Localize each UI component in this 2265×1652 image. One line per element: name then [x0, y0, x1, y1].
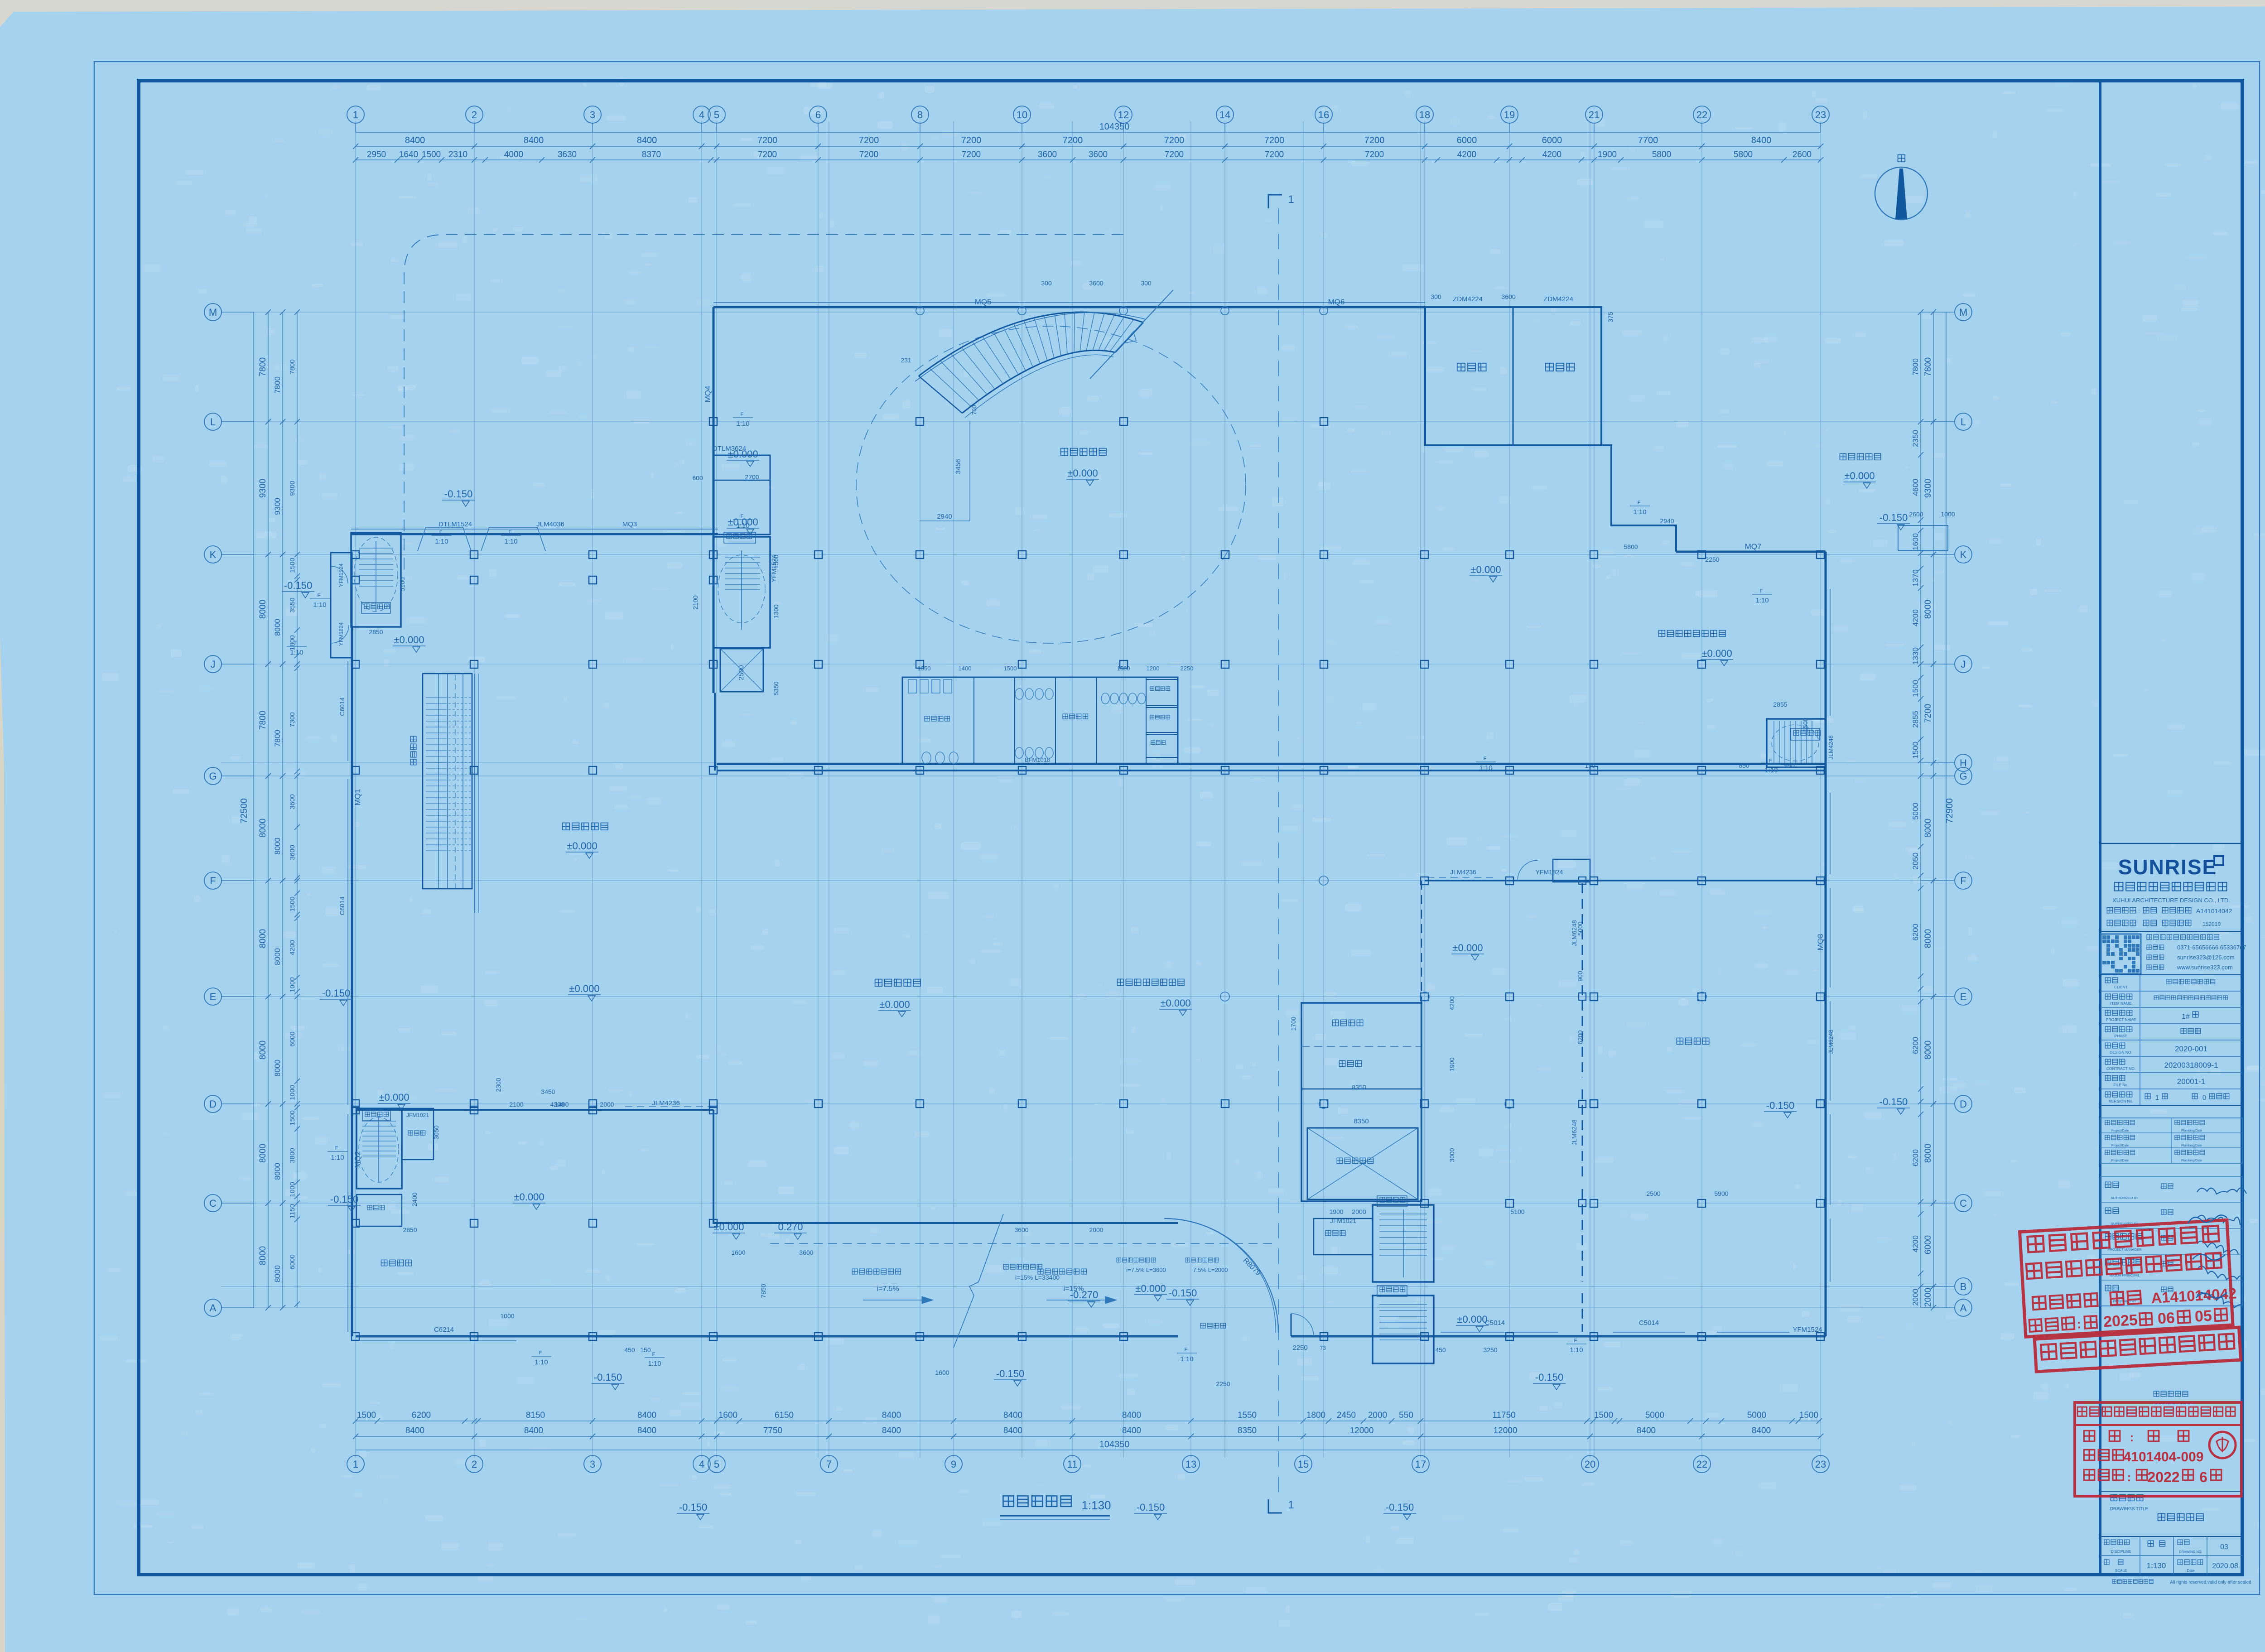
svg-text:±0.000: ±0.000 — [514, 1191, 544, 1203]
svg-text:F: F — [1769, 758, 1772, 764]
svg-text:7200: 7200 — [1265, 150, 1284, 159]
svg-text:2022: 2022 — [2147, 1469, 2179, 1485]
svg-text:BFM1018: BFM1018 — [1025, 756, 1050, 763]
svg-text:6200: 6200 — [412, 1411, 431, 1420]
svg-text:F: F — [652, 1352, 655, 1357]
svg-text:10: 10 — [1017, 109, 1027, 120]
svg-text:6200: 6200 — [1911, 1037, 1920, 1054]
svg-text:7800: 7800 — [289, 359, 296, 374]
svg-text:7200: 7200 — [1165, 150, 1184, 159]
svg-text:2000: 2000 — [1923, 1288, 1933, 1307]
svg-text:F: F — [1185, 1347, 1188, 1353]
svg-text:B: B — [1960, 1281, 1967, 1292]
svg-text:8400: 8400 — [1122, 1426, 1141, 1435]
svg-text:8370: 8370 — [642, 150, 661, 159]
svg-text:2310: 2310 — [448, 150, 467, 159]
svg-text:1: 1 — [353, 1459, 358, 1470]
svg-text:22: 22 — [1696, 1459, 1707, 1470]
svg-text:231: 231 — [901, 356, 911, 364]
svg-text:±0.000: ±0.000 — [379, 1092, 409, 1103]
svg-text:E: E — [1960, 991, 1967, 1002]
svg-text:Plumbing/Date: Plumbing/Date — [2181, 1159, 2202, 1162]
svg-text:0: 0 — [2202, 1094, 2206, 1102]
svg-text:8000: 8000 — [258, 1040, 268, 1060]
svg-text:4200: 4200 — [1457, 150, 1476, 159]
svg-text:4101404-009: 4101404-009 — [2124, 1450, 2204, 1464]
svg-text:www.sunrise323.com: www.sunrise323.com — [2177, 964, 2233, 971]
svg-text:2100: 2100 — [692, 595, 699, 609]
svg-text:SUNRISE: SUNRISE — [2118, 855, 2217, 879]
svg-text:7800: 7800 — [1911, 358, 1920, 376]
svg-text:±0.000: ±0.000 — [879, 999, 910, 1010]
svg-text:JFM1021: JFM1021 — [406, 1112, 429, 1118]
svg-text:1500: 1500 — [289, 896, 296, 911]
svg-text:9300: 9300 — [258, 479, 268, 498]
svg-text:-0.150: -0.150 — [996, 1368, 1024, 1379]
svg-text:±0.000: ±0.000 — [1160, 997, 1190, 1009]
svg-text:1500: 1500 — [772, 554, 780, 568]
svg-text:8400: 8400 — [1637, 1426, 1656, 1435]
svg-text:375: 375 — [1607, 312, 1614, 323]
svg-text:5100: 5100 — [399, 577, 406, 591]
svg-text:JFM1021: JFM1021 — [1330, 1217, 1357, 1224]
svg-text:F: F — [335, 1146, 338, 1151]
svg-text:±0.000: ±0.000 — [1701, 648, 1732, 659]
svg-text:1500: 1500 — [422, 150, 441, 159]
svg-text:2950: 2950 — [367, 150, 386, 159]
svg-text:7750: 7750 — [763, 1426, 782, 1435]
svg-text:JLM6248: JLM6248 — [1827, 1030, 1834, 1054]
svg-text:1700: 1700 — [1290, 1016, 1297, 1031]
svg-text:ITEM NAME: ITEM NAME — [2110, 1001, 2132, 1006]
svg-text:7800: 7800 — [273, 376, 282, 394]
svg-text:8000: 8000 — [258, 1144, 268, 1163]
svg-text:19: 19 — [1504, 109, 1515, 120]
svg-text:F: F — [318, 593, 321, 598]
svg-text:MQ2: MQ2 — [353, 1151, 362, 1168]
svg-text:1000: 1000 — [289, 1182, 296, 1197]
svg-text:11: 11 — [1067, 1459, 1078, 1470]
svg-text:2700: 2700 — [745, 473, 759, 481]
svg-text:300: 300 — [1141, 279, 1152, 287]
svg-text:7800: 7800 — [258, 357, 268, 376]
svg-text:PROJECT MANAGER: PROJECT MANAGER — [2108, 1247, 2142, 1252]
svg-text:L: L — [210, 416, 216, 428]
svg-text:F: F — [1484, 756, 1487, 761]
svg-text:DESIGN NO.: DESIGN NO. — [2110, 1050, 2132, 1055]
svg-text:8400: 8400 — [1752, 1426, 1771, 1435]
svg-text:5350: 5350 — [772, 681, 780, 695]
svg-text:8000: 8000 — [273, 619, 282, 636]
svg-text:5800: 5800 — [1624, 543, 1638, 550]
svg-text:2250: 2250 — [1181, 665, 1194, 672]
svg-text:D: D — [209, 1098, 217, 1110]
svg-text:5: 5 — [714, 1459, 719, 1470]
svg-text:A141014042: A141014042 — [2196, 907, 2232, 915]
svg-text:F: F — [294, 641, 298, 646]
svg-text:7200: 7200 — [758, 150, 777, 159]
svg-text:3600: 3600 — [1089, 279, 1103, 287]
svg-text:MQ3: MQ3 — [622, 520, 637, 528]
svg-text:1:10: 1:10 — [504, 538, 517, 545]
svg-text:Project/Date: Project/Date — [2111, 1159, 2129, 1162]
svg-text:1500: 1500 — [1799, 1411, 1818, 1420]
svg-text:8400: 8400 — [882, 1426, 901, 1435]
svg-text:3450: 3450 — [541, 1088, 555, 1095]
svg-text:150: 150 — [1585, 762, 1595, 769]
svg-text:3600: 3600 — [1038, 150, 1057, 159]
svg-text:JLM4036: JLM4036 — [536, 520, 564, 528]
svg-text:C6014: C6014 — [338, 697, 346, 716]
svg-text:7200: 7200 — [1063, 135, 1083, 145]
svg-text:23: 23 — [1815, 1459, 1826, 1470]
svg-text:FILE No.: FILE No. — [2113, 1083, 2129, 1087]
svg-text:5800: 5800 — [1652, 150, 1671, 159]
svg-text:22: 22 — [1696, 109, 1707, 120]
svg-text:±0.000: ±0.000 — [569, 983, 599, 994]
svg-text:7200: 7200 — [1364, 135, 1385, 145]
svg-text:JLM4236: JLM4236 — [1450, 868, 1476, 876]
svg-text:2600: 2600 — [1909, 511, 1923, 518]
svg-text:1: 1 — [353, 109, 358, 120]
svg-text:03: 03 — [2220, 1543, 2228, 1551]
svg-text:2940: 2940 — [937, 513, 952, 520]
svg-text:3250: 3250 — [1483, 1346, 1497, 1353]
svg-text:Plumbing/Date: Plumbing/Date — [2181, 1129, 2202, 1132]
svg-text::: : — [2127, 1470, 2131, 1484]
svg-text:M: M — [1959, 307, 1967, 318]
svg-text:9300: 9300 — [289, 481, 296, 496]
svg-text:8000: 8000 — [1923, 1040, 1933, 1060]
svg-text:7200: 7200 — [1164, 135, 1185, 145]
svg-text:1400: 1400 — [959, 665, 972, 672]
svg-text:1:10: 1:10 — [1479, 764, 1492, 772]
svg-text:F: F — [1638, 500, 1641, 506]
svg-text:±0.000: ±0.000 — [567, 840, 597, 852]
svg-text:DRAWINGS TITLE: DRAWINGS TITLE — [2110, 1507, 2149, 1512]
svg-text:A: A — [1960, 1302, 1967, 1314]
svg-text:4000: 4000 — [504, 150, 523, 159]
svg-text:YFM1524: YFM1524 — [338, 564, 344, 587]
svg-text:7200: 7200 — [859, 150, 878, 159]
svg-text:1: 1 — [1288, 193, 1294, 206]
svg-text:J: J — [1961, 659, 1966, 670]
svg-text:73: 73 — [1320, 1345, 1326, 1351]
svg-text:8400: 8400 — [405, 135, 425, 145]
svg-text:1500: 1500 — [1004, 665, 1017, 672]
svg-text:1300: 1300 — [772, 604, 780, 618]
svg-text:7800: 7800 — [258, 711, 268, 730]
svg-text:4600: 4600 — [1911, 479, 1920, 496]
svg-text:8350: 8350 — [1354, 1117, 1369, 1125]
svg-text:12000: 12000 — [1350, 1426, 1374, 1435]
svg-text:1500: 1500 — [289, 558, 296, 573]
svg-text:8400: 8400 — [637, 135, 657, 145]
svg-text:3600: 3600 — [289, 845, 296, 860]
svg-text:-0.150: -0.150 — [1169, 1287, 1197, 1299]
svg-text:3600: 3600 — [1501, 293, 1515, 300]
svg-text:-0.150: -0.150 — [1879, 1096, 1908, 1108]
svg-text:23: 23 — [1815, 109, 1826, 120]
svg-text:6200: 6200 — [1911, 924, 1920, 941]
svg-text:8400: 8400 — [524, 1426, 543, 1435]
svg-text:300: 300 — [1431, 293, 1441, 300]
svg-text:8400: 8400 — [882, 1411, 901, 1420]
svg-text:1500: 1500 — [1802, 718, 1809, 732]
svg-text:5800: 5800 — [1734, 150, 1753, 159]
svg-text:6000: 6000 — [1457, 135, 1477, 145]
svg-text:1200: 1200 — [1147, 665, 1160, 672]
svg-text:8000: 8000 — [1923, 600, 1933, 619]
svg-text:21: 21 — [1589, 109, 1600, 120]
svg-text:7.5% L=2000: 7.5% L=2000 — [1193, 1267, 1228, 1273]
svg-text:F: F — [439, 530, 443, 535]
svg-text:F: F — [210, 875, 216, 886]
svg-text:±0.000: ±0.000 — [1470, 564, 1501, 575]
svg-text:-0.150: -0.150 — [284, 580, 312, 591]
svg-text:7: 7 — [826, 1459, 832, 1470]
svg-text:-0.150: -0.150 — [679, 1502, 707, 1513]
svg-text:9: 9 — [951, 1459, 956, 1470]
svg-text:18: 18 — [1419, 109, 1430, 120]
svg-text:1330: 1330 — [1911, 647, 1920, 665]
svg-text:F: F — [539, 1350, 542, 1356]
svg-text:4200: 4200 — [289, 940, 296, 955]
svg-text:2000: 2000 — [1352, 1208, 1366, 1215]
svg-text:3800: 3800 — [289, 1148, 296, 1163]
svg-text:1:10: 1:10 — [331, 1154, 344, 1161]
svg-text:104350: 104350 — [1099, 1440, 1130, 1450]
svg-text:-0.150: -0.150 — [1535, 1372, 1563, 1383]
svg-text:1: 1 — [2155, 1094, 2159, 1102]
svg-text:DTLM1524: DTLM1524 — [439, 520, 472, 528]
svg-text:JLM6248: JLM6248 — [1571, 1119, 1578, 1146]
svg-text:1500: 1500 — [1911, 680, 1920, 697]
svg-text:1550: 1550 — [1238, 1411, 1257, 1420]
svg-text:8000: 8000 — [273, 1060, 282, 1077]
svg-text:8400: 8400 — [405, 1426, 424, 1435]
svg-text:JLM4248: JLM4248 — [1827, 735, 1834, 759]
svg-text:8000: 8000 — [258, 929, 268, 948]
svg-text:A: A — [210, 1302, 217, 1314]
svg-text:8000: 8000 — [258, 600, 268, 619]
svg-text:104350: 104350 — [1099, 122, 1130, 132]
svg-text:12000: 12000 — [1494, 1426, 1518, 1435]
svg-text:3600: 3600 — [1089, 150, 1108, 159]
svg-text:3600: 3600 — [1014, 1226, 1028, 1233]
svg-text:7200: 7200 — [1923, 704, 1933, 723]
svg-text:2250: 2250 — [1292, 1344, 1307, 1352]
svg-text:8350: 8350 — [1352, 1084, 1366, 1091]
svg-text:±0.000: ±0.000 — [394, 634, 424, 645]
svg-text:72500: 72500 — [239, 798, 249, 824]
svg-text:YFM1824: YFM1824 — [1536, 868, 1563, 876]
svg-text:1600: 1600 — [718, 1411, 737, 1420]
svg-text:1000: 1000 — [1941, 511, 1955, 518]
svg-text:8000: 8000 — [1923, 929, 1933, 948]
svg-text:1:130: 1:130 — [2147, 1561, 2166, 1570]
svg-text:CLIENT: CLIENT — [2114, 985, 2128, 989]
svg-text:J: J — [211, 659, 216, 670]
svg-text:1500: 1500 — [357, 1411, 376, 1420]
svg-text:2020.08: 2020.08 — [2212, 1562, 2238, 1570]
svg-text:8400: 8400 — [1751, 135, 1772, 145]
svg-text:MQ4: MQ4 — [704, 386, 712, 403]
svg-text:2940: 2940 — [1660, 517, 1674, 525]
svg-text:3050: 3050 — [433, 1125, 440, 1139]
svg-text:5000: 5000 — [1576, 921, 1584, 935]
svg-text:Project/Date: Project/Date — [2111, 1144, 2129, 1147]
svg-text:G: G — [209, 771, 217, 782]
svg-text:1800: 1800 — [1306, 1411, 1325, 1420]
svg-text:7200: 7200 — [1365, 150, 1384, 159]
svg-text:±0.000: ±0.000 — [1457, 1314, 1487, 1325]
svg-text:1600: 1600 — [1911, 533, 1920, 550]
svg-text:20200318009-1: 20200318009-1 — [2164, 1061, 2218, 1069]
svg-text:7800: 7800 — [273, 730, 282, 747]
svg-text:Plumbing/Date: Plumbing/Date — [2181, 1144, 2202, 1147]
svg-text:i=7.5%: i=7.5% — [877, 1285, 899, 1293]
svg-text:8000: 8000 — [273, 1265, 282, 1282]
svg-text:1600: 1600 — [731, 1249, 745, 1256]
svg-text:C: C — [1960, 1198, 1967, 1209]
svg-text:DRAWING NO.: DRAWING NO. — [2179, 1550, 2202, 1554]
svg-text:6000: 6000 — [1542, 135, 1562, 145]
svg-text:2000: 2000 — [600, 1101, 614, 1108]
svg-text:1370: 1370 — [1911, 569, 1920, 587]
svg-text:8400: 8400 — [637, 1411, 656, 1420]
svg-text:i=15%: i=15% — [1064, 1285, 1084, 1293]
svg-text:2450: 2450 — [1337, 1411, 1356, 1420]
svg-text:8000: 8000 — [273, 948, 282, 965]
svg-text:3: 3 — [590, 1459, 595, 1470]
svg-text:E: E — [210, 991, 217, 1002]
svg-text:C5014: C5014 — [1639, 1319, 1659, 1327]
svg-text:7200: 7200 — [962, 150, 981, 159]
svg-text:2020-001: 2020-001 — [2175, 1045, 2207, 1053]
svg-text:K: K — [1960, 549, 1967, 560]
svg-text:±0.000: ±0.000 — [1844, 470, 1875, 482]
svg-text::: : — [2130, 1430, 2134, 1444]
svg-text:450: 450 — [624, 1346, 635, 1353]
svg-text:450: 450 — [1435, 1346, 1446, 1353]
svg-text:5000: 5000 — [1911, 803, 1920, 820]
svg-text:VERSION No.: VERSION No. — [2109, 1099, 2133, 1103]
svg-text:SCALE: SCALE — [2115, 1569, 2127, 1573]
svg-text:72900: 72900 — [1945, 798, 1955, 824]
svg-text:150: 150 — [640, 1346, 651, 1353]
svg-text:1000: 1000 — [500, 1312, 514, 1320]
svg-text:5000: 5000 — [1645, 1411, 1664, 1420]
svg-text:2600: 2600 — [1793, 150, 1812, 159]
svg-text:K: K — [210, 549, 217, 560]
svg-text:Date: Date — [2187, 1569, 2195, 1573]
svg-text:F: F — [1574, 1338, 1577, 1344]
svg-text:6200: 6200 — [1911, 1149, 1920, 1166]
svg-text:C6014: C6014 — [338, 896, 346, 915]
svg-text:±0.000: ±0.000 — [1067, 467, 1098, 479]
svg-text:F: F — [741, 514, 744, 519]
svg-text:2100: 2100 — [509, 1101, 523, 1108]
svg-text:8000: 8000 — [273, 838, 282, 855]
svg-text:1:10: 1:10 — [1570, 1346, 1583, 1354]
svg-text:MQ1: MQ1 — [353, 789, 362, 806]
svg-text:4200: 4200 — [1448, 996, 1455, 1010]
svg-text:PROJECT NAME: PROJECT NAME — [2106, 1017, 2136, 1022]
svg-text:1600: 1600 — [935, 1369, 949, 1376]
svg-text:M: M — [209, 307, 217, 318]
svg-text:2855: 2855 — [1911, 711, 1920, 728]
svg-text:2350: 2350 — [1911, 430, 1920, 447]
svg-text:1#: 1# — [2182, 1013, 2190, 1021]
svg-text:DISCIPLINE: DISCIPLINE — [2111, 1550, 2131, 1554]
svg-text:8400: 8400 — [524, 135, 544, 145]
svg-text:0.270: 0.270 — [778, 1221, 803, 1233]
svg-text:1:10: 1:10 — [736, 522, 749, 530]
svg-text:-0.150: -0.150 — [444, 488, 472, 500]
svg-text:DTLM3624: DTLM3624 — [713, 445, 746, 453]
svg-text:3550: 3550 — [289, 597, 296, 612]
svg-text:8400: 8400 — [637, 1426, 656, 1435]
svg-text:1900: 1900 — [1329, 1208, 1343, 1215]
svg-text:3: 3 — [590, 109, 595, 120]
svg-text:Project/Date: Project/Date — [2111, 1129, 2129, 1132]
svg-text:i=15% L=33400: i=15% L=33400 — [1015, 1274, 1060, 1281]
svg-text:05: 05 — [2194, 1307, 2212, 1325]
svg-text:1640: 1640 — [399, 150, 418, 159]
svg-text:600: 600 — [692, 474, 703, 482]
svg-text:5100: 5100 — [1510, 1208, 1524, 1215]
svg-text:6000: 6000 — [289, 1254, 296, 1269]
svg-text:1:10: 1:10 — [736, 420, 749, 428]
svg-text::: : — [2138, 907, 2140, 915]
svg-text:3456: 3456 — [954, 459, 962, 474]
svg-text:1:10: 1:10 — [1755, 597, 1769, 604]
svg-text:1000: 1000 — [289, 977, 296, 992]
svg-text:2250: 2250 — [1216, 1380, 1230, 1387]
svg-text:4200: 4200 — [1911, 1235, 1920, 1252]
svg-text:900: 900 — [1576, 971, 1584, 982]
svg-text:1:10: 1:10 — [535, 1358, 548, 1366]
svg-text:6: 6 — [815, 109, 821, 120]
svg-text:20: 20 — [1585, 1459, 1595, 1470]
svg-text:9300: 9300 — [1923, 479, 1933, 498]
svg-text:2025: 2025 — [2103, 1311, 2138, 1330]
svg-text:D: D — [1960, 1098, 1967, 1110]
svg-text:2400: 2400 — [411, 1192, 418, 1206]
svg-text:4200: 4200 — [1911, 609, 1920, 626]
svg-text:8150: 8150 — [526, 1411, 545, 1420]
svg-text:YFM1824: YFM1824 — [338, 622, 344, 646]
svg-text::: : — [2077, 1317, 2082, 1331]
svg-text:7300: 7300 — [289, 712, 296, 727]
svg-text:2300: 2300 — [495, 1078, 502, 1092]
svg-text:8: 8 — [917, 109, 923, 120]
svg-text:7700: 7700 — [1638, 135, 1658, 145]
svg-text:C: C — [209, 1198, 217, 1209]
svg-text:1500: 1500 — [1594, 1411, 1613, 1420]
svg-text:-0.150: -0.150 — [322, 987, 350, 999]
svg-text:6150: 6150 — [775, 1411, 794, 1420]
svg-text:8000: 8000 — [1923, 1144, 1933, 1163]
svg-text:3600: 3600 — [799, 1249, 813, 1256]
svg-text:13: 13 — [1186, 1459, 1196, 1470]
svg-text:6: 6 — [2199, 1469, 2207, 1485]
svg-text:4: 4 — [699, 1459, 704, 1470]
svg-text:F: F — [1760, 588, 1763, 594]
svg-text:-0.150: -0.150 — [330, 1194, 358, 1205]
svg-text:5000: 5000 — [1747, 1411, 1766, 1420]
